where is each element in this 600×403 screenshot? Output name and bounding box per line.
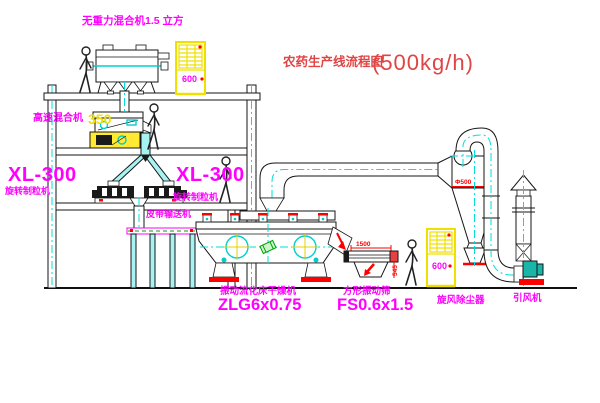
belt-conveyor <box>127 228 198 288</box>
dim-sieve-height: 545 <box>392 265 399 276</box>
diagram-capacity: (500kg/h) <box>372 50 474 75</box>
fluid-bed-dryer <box>196 208 352 282</box>
label-fan: 引风机 <box>513 292 542 304</box>
control-cabinet-ground <box>427 229 455 286</box>
granulator-left <box>92 181 136 203</box>
fan-housing <box>523 261 537 277</box>
indicator-dot <box>447 233 450 236</box>
label-belt-conveyor: 皮带输送机 <box>145 208 191 219</box>
drawing-canvas: 农药生产线流程图 (500kg/h) 无重力混合机1.5 立方 高速混合机 35… <box>0 0 600 403</box>
label-granulator-left: 旋转制粒机 <box>4 185 50 196</box>
label-sieve-model: FS0.6x1.5 <box>337 296 413 314</box>
label-high-speed-mixer: 高速混合机 <box>33 111 83 124</box>
label-gravity-mixer: 无重力混合机1.5 立方 <box>81 14 184 27</box>
cabinet-top-mark: 600 <box>182 74 197 84</box>
indicator-dot <box>200 77 203 80</box>
dryer-deck <box>196 222 336 229</box>
second-floor-slab <box>56 148 247 155</box>
indicator-dot <box>198 45 201 48</box>
fan-motor <box>537 264 543 275</box>
label-granulator-right-model: XL-300 <box>176 164 245 186</box>
label-granulator-right: 旋转制粒机 <box>172 191 218 202</box>
label-high-speed-mixer-model: 350 <box>88 111 112 127</box>
person-figure <box>406 240 417 285</box>
fan-base <box>519 279 544 285</box>
dim-sieve-length: 1500 <box>356 241 371 248</box>
label-dryer-model: ZLG6x0.75 <box>218 296 301 314</box>
vibrating-sieve <box>344 245 398 278</box>
diagram-title: 农药生产线流程图 <box>282 54 383 69</box>
induced-draft-fan <box>514 261 544 285</box>
roof-slab <box>44 93 260 100</box>
y-splitter-pipe <box>110 155 172 183</box>
indicator-dot <box>448 264 451 267</box>
exhaust-duct <box>260 163 445 211</box>
cabinet-ground-mark: 600 <box>432 261 447 271</box>
mixer-outlet-pipe <box>141 133 150 155</box>
label-cyclone: 旋风除尘器 <box>436 294 485 306</box>
control-cabinet-top <box>176 42 205 94</box>
process-flow-diagram: 农药生产线流程图 (500kg/h) 无重力混合机1.5 立方 高速混合机 35… <box>0 0 600 403</box>
dim-cyclone-diameter: Φ500 <box>455 179 472 186</box>
label-granulator-left-model: XL-300 <box>8 164 77 186</box>
sieve-base <box>354 262 388 277</box>
